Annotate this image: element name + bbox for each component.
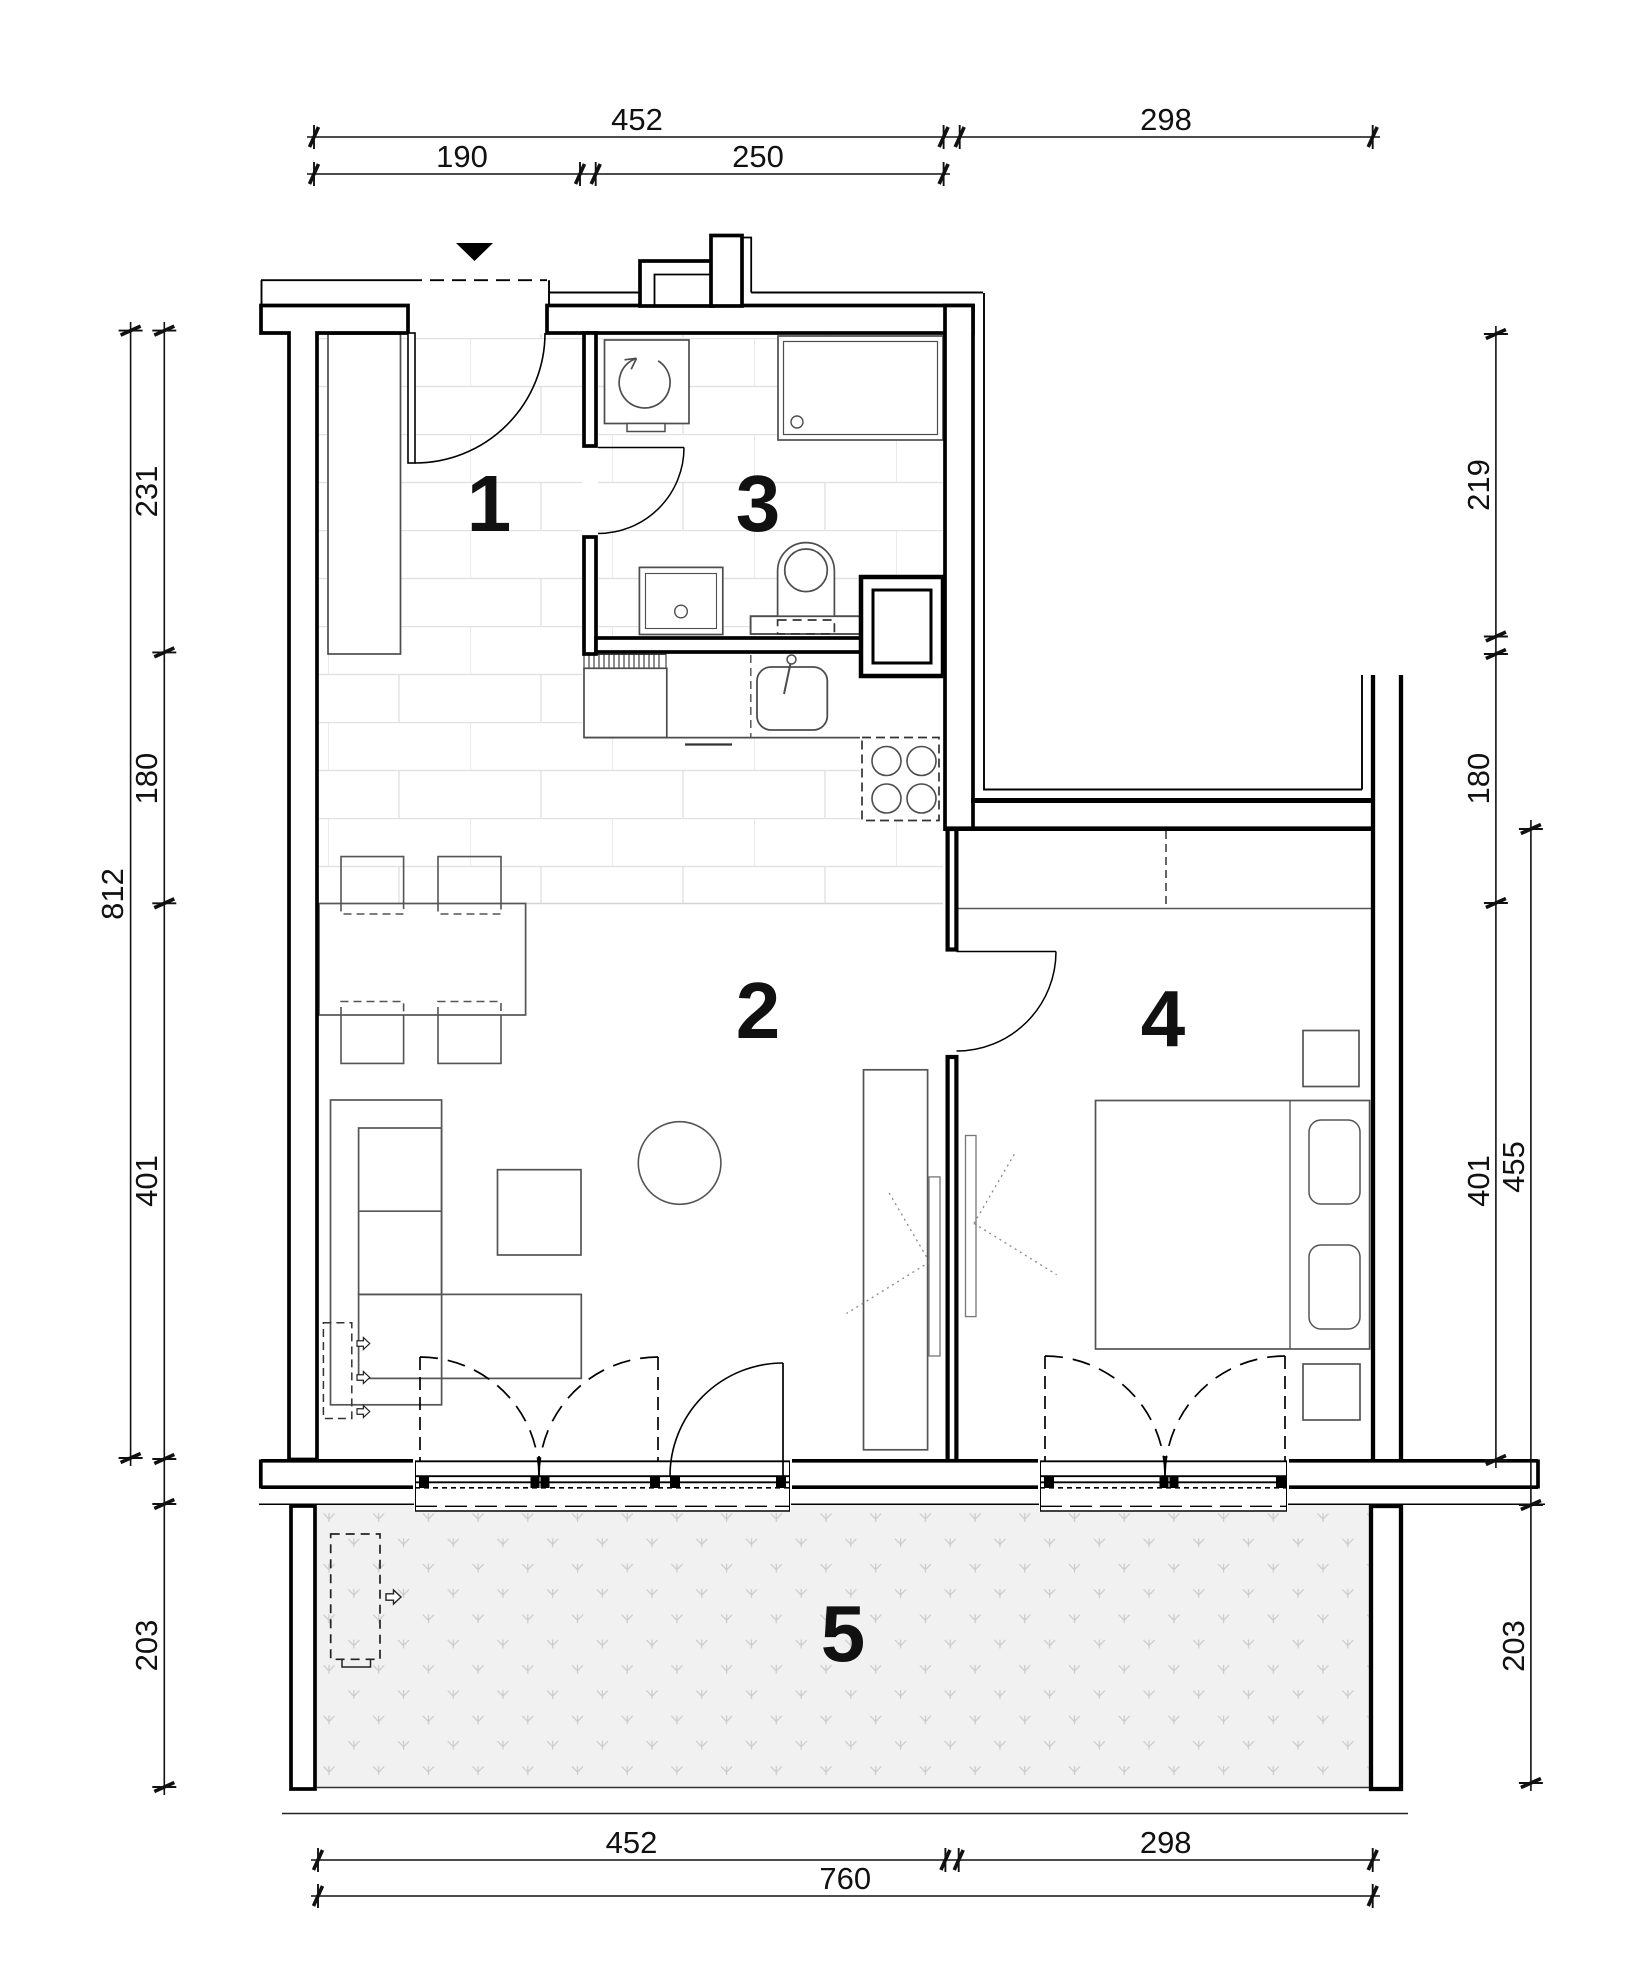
svg-text:203: 203 (1496, 1620, 1531, 1672)
svg-text:3: 3 (736, 459, 781, 548)
svg-text:203: 203 (129, 1620, 164, 1672)
svg-text:2: 2 (736, 966, 781, 1055)
svg-text:760: 760 (819, 1861, 871, 1896)
svg-text:231: 231 (129, 466, 164, 518)
svg-text:250: 250 (732, 139, 784, 174)
svg-text:1: 1 (467, 459, 512, 548)
svg-text:455: 455 (1496, 1141, 1531, 1193)
svg-text:180: 180 (1461, 753, 1496, 805)
svg-text:219: 219 (1461, 459, 1496, 511)
svg-text:180: 180 (129, 753, 164, 805)
svg-text:401: 401 (1461, 1155, 1496, 1207)
svg-text:298: 298 (1140, 102, 1192, 137)
svg-text:190: 190 (436, 139, 488, 174)
svg-text:452: 452 (606, 1825, 658, 1860)
svg-text:452: 452 (611, 102, 663, 137)
svg-text:812: 812 (95, 868, 130, 920)
svg-text:401: 401 (129, 1155, 164, 1207)
svg-text:298: 298 (1140, 1825, 1192, 1860)
svg-text:5: 5 (821, 1589, 866, 1678)
svg-text:4: 4 (1141, 974, 1186, 1063)
